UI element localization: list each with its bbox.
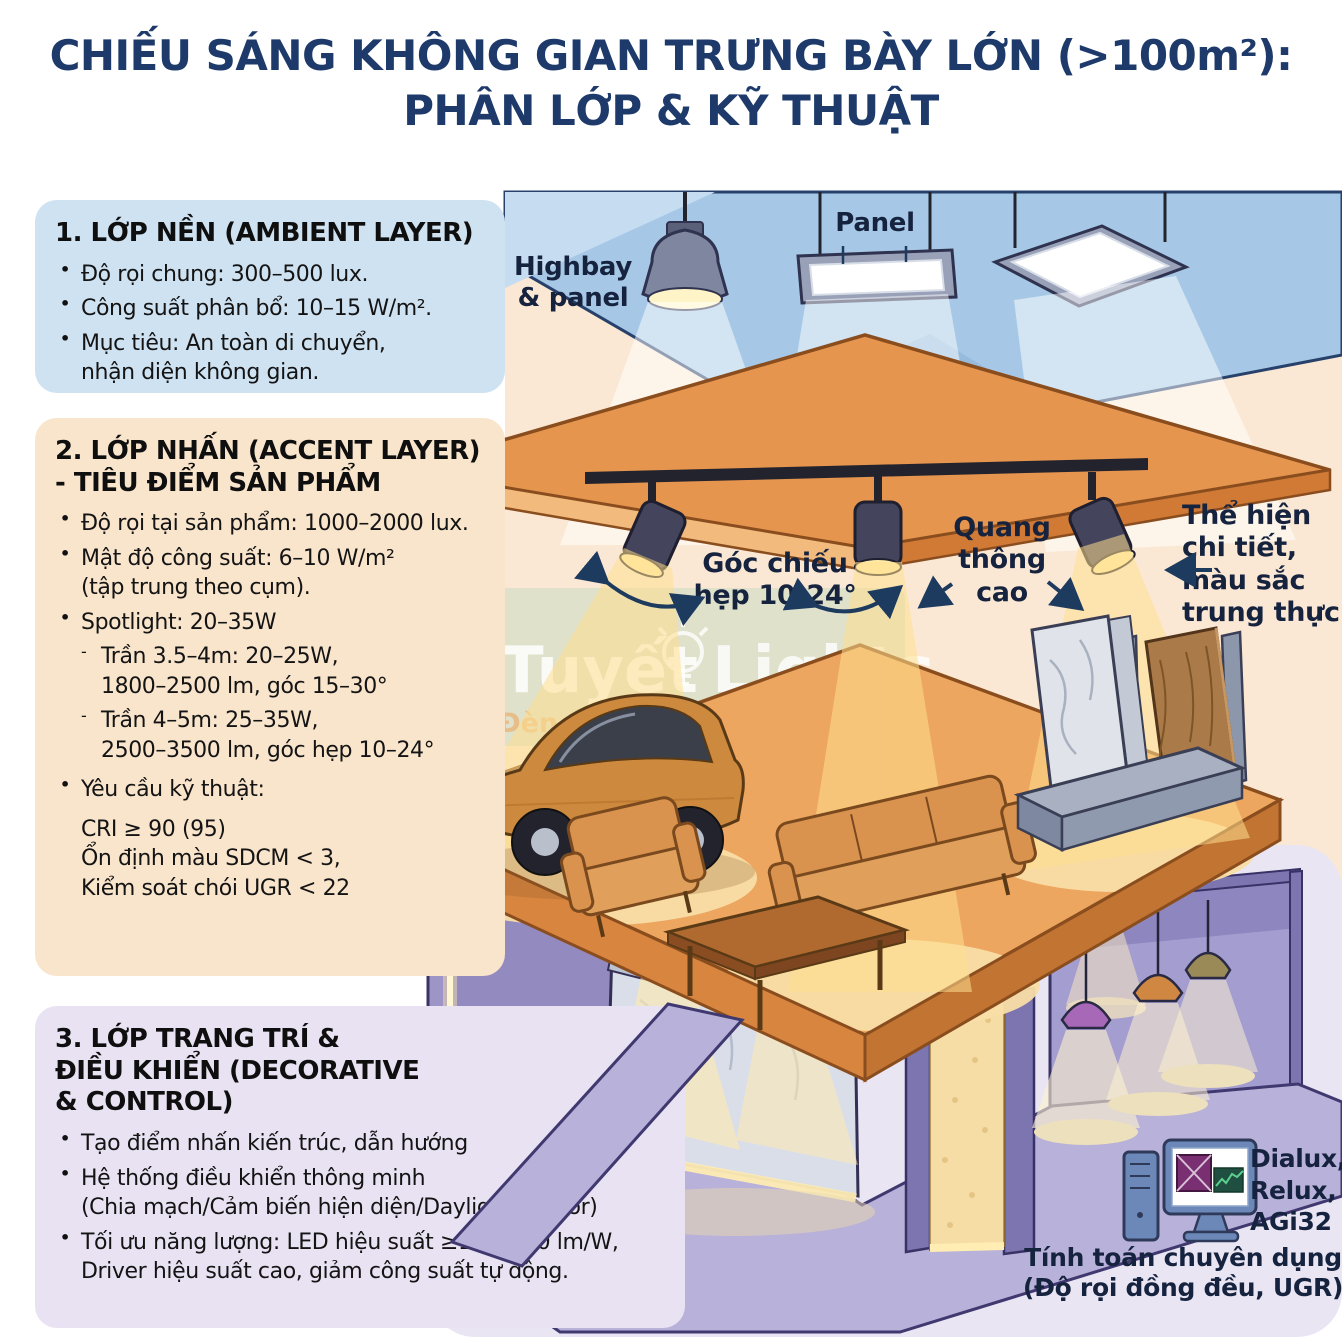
requirement-line: CRI ≥ 90 (95) Ổn định màu SDCM < 3, Kiểm…: [55, 815, 485, 903]
layer-panel-ambient: 1. LỚP NỀN (AMBIENT LAYER) Độ rọi chung:…: [35, 200, 505, 393]
label-highbay-panel: Highbay & panel: [503, 252, 643, 314]
label-color-fidelity: Thể hiện chi tiết, màu sắc trung thực: [1182, 500, 1342, 630]
sub-list-item: Trần 4–5m: 25–35W, 2500–3500 lm, góc hẹp…: [55, 706, 485, 765]
label-beam-angle: Góc chiếu hẹp 10-24°: [688, 548, 862, 613]
list-item: Độ rọi chung: 300–500 lux.: [55, 260, 485, 289]
list-item: Mật độ công suất: 6–10 W/m² (tập trung t…: [55, 544, 485, 603]
layer-heading: 3. LỚP TRANG TRÍ & ĐIỀU KHIỂN (DECORATIV…: [55, 1024, 665, 1119]
infographic-canvas: Tuyết Lights Đèn chuẩn gian chất: [0, 0, 1342, 1342]
page-title-line2: PHÂN LỚP & KỸ THUẬT: [0, 83, 1342, 138]
list-item: Hệ thống điều khiển thông minh (Chia mạc…: [55, 1164, 665, 1223]
page-title-line1: CHIẾU SÁNG KHÔNG GIAN TRƯNG BÀY LỚN (>10…: [0, 28, 1342, 83]
layer-heading: 2. LỚP NHẤN (ACCENT LAYER) - TIÊU ĐIỂM S…: [55, 436, 485, 499]
list-item: Tối ưu năng lượng: LED hiệu suất ≥100–12…: [55, 1228, 665, 1287]
list-item: Spotlight: 20–35W: [55, 608, 485, 637]
list-item: Công suất phân bổ: 10–15 W/m².: [55, 294, 485, 323]
sub-list-item: Trần 3.5–4m: 20–25W, 1800–2500 lm, góc 1…: [55, 642, 485, 701]
list-item: Độ rọi tại sản phẩm: 1000–2000 lux.: [55, 509, 485, 538]
list-item: Tạo điểm nhấn kiến trúc, dẫn hướng: [55, 1129, 665, 1158]
layer-heading: 1. LỚP NỀN (AMBIENT LAYER): [55, 218, 485, 250]
label-luminous-flux: Quang thông cao: [946, 512, 1058, 609]
label-calculation: Tính toán chuyên dụng (Độ rọi đồng đều, …: [1022, 1243, 1342, 1303]
layer-panel-accent: 2. LỚP NHẤN (ACCENT LAYER) - TIÊU ĐIỂM S…: [35, 418, 505, 976]
label-panel: Panel: [828, 208, 922, 239]
label-software-tools: Dialux, Relux, AGi32: [1250, 1143, 1342, 1238]
page-title: CHIẾU SÁNG KHÔNG GIAN TRƯNG BÀY LỚN (>10…: [0, 28, 1342, 139]
list-item: Yêu cầu kỹ thuật:: [55, 775, 485, 804]
layer-panel-decorative: 3. LỚP TRANG TRÍ & ĐIỀU KHIỂN (DECORATIV…: [35, 1006, 685, 1328]
list-item: Mục tiêu: An toàn di chuyển, nhận diện k…: [55, 329, 485, 388]
